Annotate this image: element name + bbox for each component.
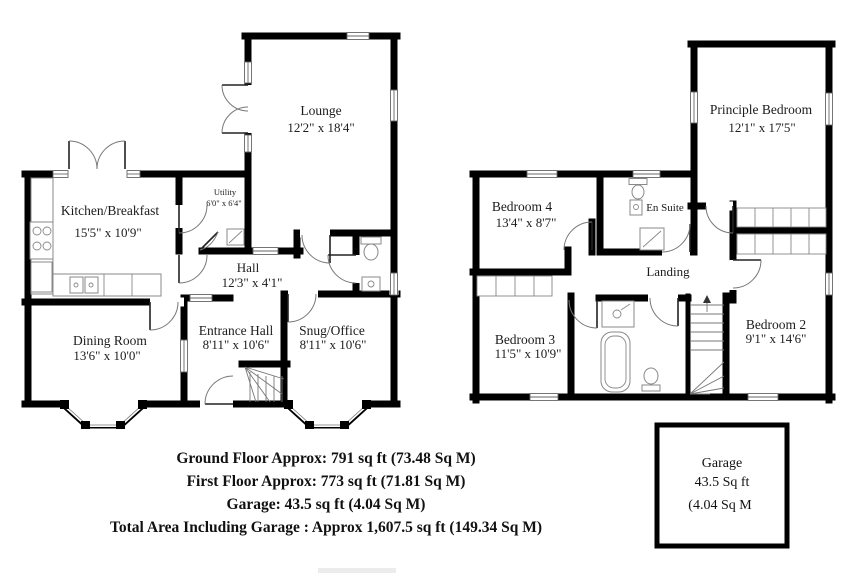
window xyxy=(530,393,558,402)
kitchen-unit xyxy=(31,262,52,292)
garage-label: Garage xyxy=(702,456,742,471)
wardrobes-bedroom3 xyxy=(477,276,552,296)
wardrobes-principle xyxy=(737,208,826,227)
summary-garage: Garage: 43.5 sq ft (4.04 Sq M) xyxy=(0,493,652,516)
room-dims-bedroom4: 13'4" x 8'7" xyxy=(496,215,557,230)
floorplan-page: Lounge 12'2" x 18'4" Kitchen/Breakfast 1… xyxy=(0,0,860,573)
bathroom-shower xyxy=(602,301,634,327)
area-summary: Ground Floor Approx: 791 sq ft (73.48 Sq… xyxy=(0,447,652,539)
summary-first-floor: First Floor Approx: 773 sq ft (71.81 Sq … xyxy=(0,470,652,493)
window xyxy=(527,170,557,179)
room-label-dining: Dining Room xyxy=(73,333,147,348)
first-floor-plan: Principle Bedroom 12'1" x 17'5" Bedroom … xyxy=(473,44,834,402)
ensuite-basin xyxy=(630,200,642,215)
window xyxy=(53,170,68,179)
room-label-principle-bedroom: Principle Bedroom xyxy=(710,102,813,117)
room-dims-bedroom3: 11'5" x 10'9" xyxy=(495,346,562,361)
room-label-landing: Landing xyxy=(646,264,690,279)
garage-area-ft: 43.5 Sq ft xyxy=(695,475,750,490)
room-dims-kitchen: 15'5" x 10'9" xyxy=(74,225,141,240)
bathtub xyxy=(601,332,630,392)
room-label-bedroom2: Bedroom 2 xyxy=(746,317,806,332)
window xyxy=(390,273,399,295)
room-label-bedroom4: Bedroom 4 xyxy=(492,199,553,214)
window xyxy=(748,393,778,402)
ensuite-toilet xyxy=(629,179,647,200)
room-dims-bedroom2: 9'1" x 14'6" xyxy=(746,331,807,346)
room-dims-entrance: 8'11" x 10'6" xyxy=(203,337,270,352)
door-utility-hall xyxy=(200,232,218,250)
summary-ground-floor: Ground Floor Approx: 791 sq ft (73.48 Sq… xyxy=(0,447,652,470)
kitchen-counter-bottom xyxy=(53,274,161,296)
room-label-ensuite: En Suite xyxy=(646,202,684,214)
room-dims-hall: 12'3" x 4'1" xyxy=(222,275,283,290)
window xyxy=(244,62,253,83)
hob xyxy=(30,222,53,259)
room-dims-dining: 13'6" x 10'0" xyxy=(73,348,140,363)
window xyxy=(633,170,660,179)
door-kitchen-hall xyxy=(179,255,207,283)
first-floor-stairs xyxy=(690,295,724,394)
room-label-utility: Utility xyxy=(214,187,237,197)
garage-box: Garage 43.5 Sq ft (4.04 Sq M xyxy=(657,425,787,546)
bottom-partial-bar xyxy=(318,568,396,573)
window xyxy=(825,93,834,125)
wardrobes-bedroom2 xyxy=(737,234,826,254)
room-dims-snug: 8'11" x 10'6" xyxy=(300,337,367,352)
ground-floor-stairs xyxy=(245,367,284,402)
garage-area-m: (4.04 Sq M xyxy=(688,498,752,513)
wc-toilet xyxy=(361,237,381,260)
boiler-cupboard xyxy=(227,229,244,245)
room-label-kitchen: Kitchen/Breakfast xyxy=(61,203,159,218)
room-label-lounge: Lounge xyxy=(300,103,341,118)
room-dims-utility: 6'0" x 6'4" xyxy=(206,198,242,208)
internal-glazed-panel xyxy=(180,340,189,372)
room-dims-principle-bedroom: 12'1" x 17'5" xyxy=(728,120,795,135)
ensuite-shower xyxy=(640,228,664,250)
internal-glazed-panel xyxy=(190,294,212,303)
stairs-up-arrow xyxy=(703,295,711,312)
window xyxy=(690,92,699,123)
room-label-entrance: Entrance Hall xyxy=(199,323,274,338)
door-bedroom4 xyxy=(564,222,592,250)
door-lounge-hall xyxy=(302,235,330,263)
bathroom-toilet xyxy=(642,368,660,391)
internal-glazed-screen xyxy=(253,247,278,256)
window xyxy=(127,170,140,179)
room-label-bedroom3: Bedroom 3 xyxy=(495,332,556,347)
room-label-snug: Snug/Office xyxy=(299,323,365,338)
window xyxy=(347,32,369,41)
window xyxy=(244,135,253,152)
french-doors-kitchen xyxy=(69,141,125,169)
window xyxy=(825,273,834,295)
ground-floor-plan: Lounge 12'2" x 18'4" Kitchen/Breakfast 1… xyxy=(25,32,399,430)
room-label-hall: Hall xyxy=(237,260,260,275)
window xyxy=(390,90,399,121)
room-dims-lounge: 12'2" x 18'4" xyxy=(287,120,354,135)
summary-total-area: Total Area Including Garage : Approx 1,6… xyxy=(0,516,652,539)
wc-basin xyxy=(362,277,380,291)
